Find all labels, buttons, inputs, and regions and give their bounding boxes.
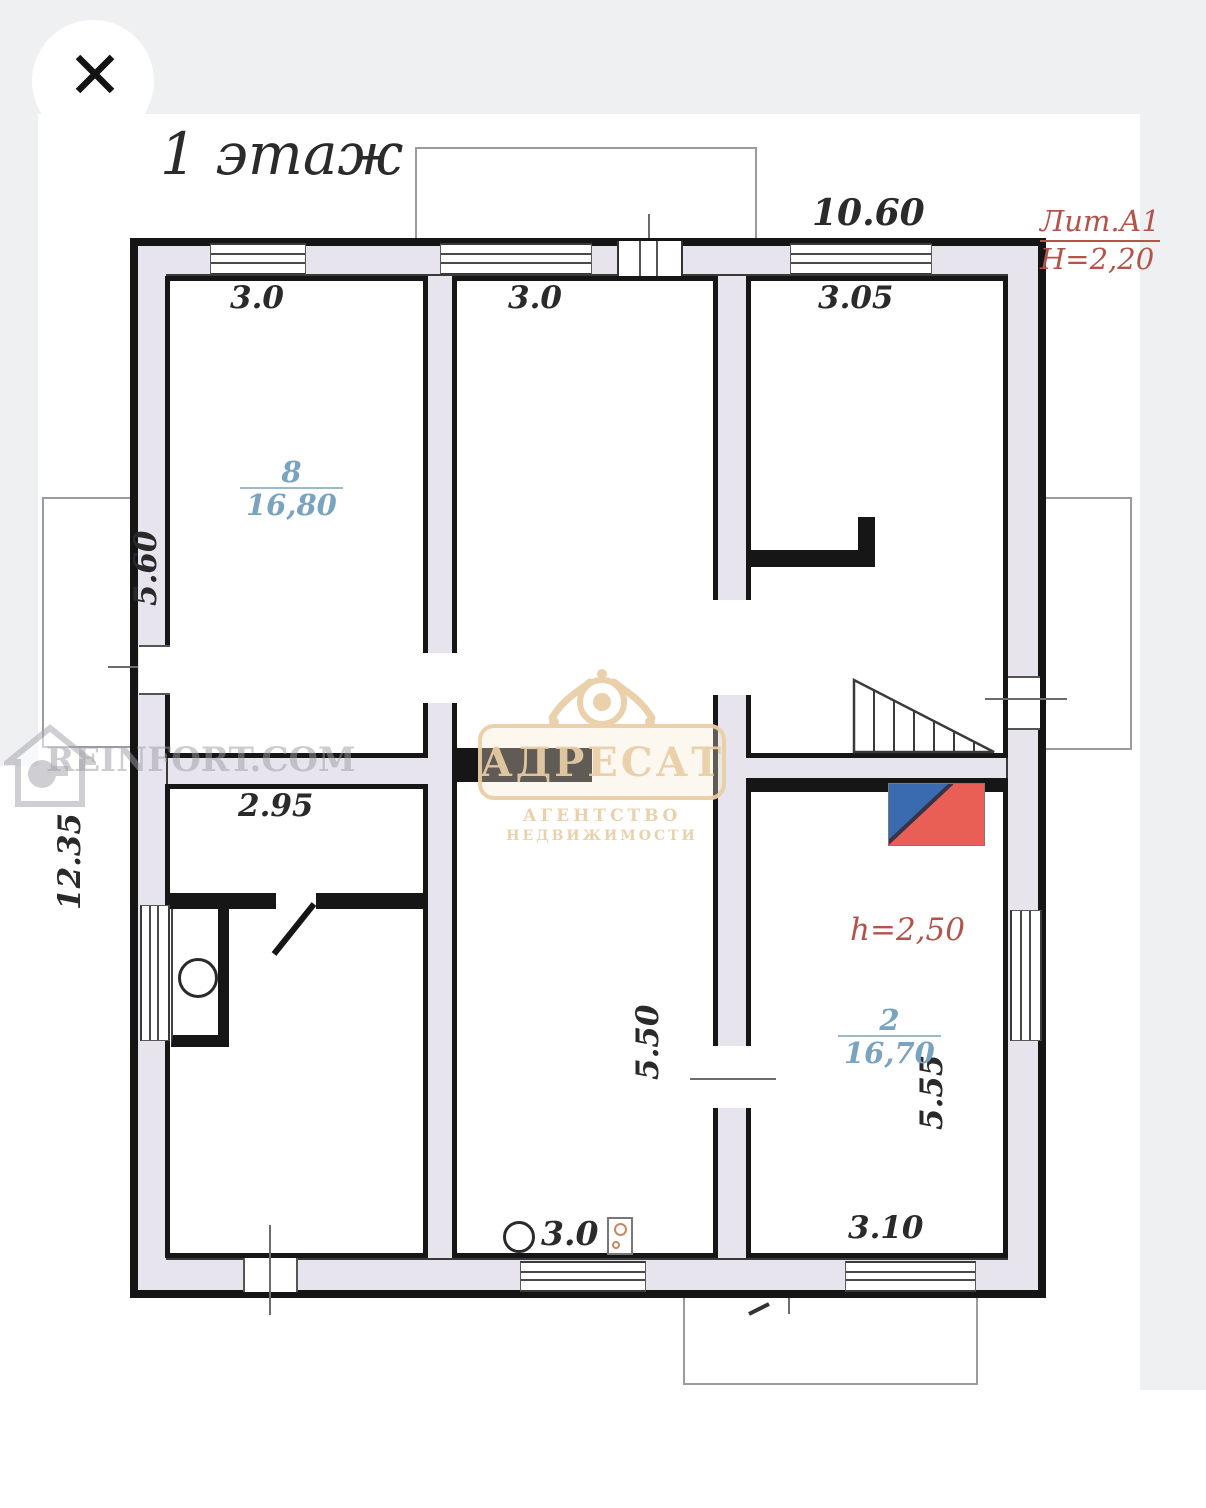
dim-hall-width: 3.0 bbox=[508, 280, 562, 316]
door-room8-hall bbox=[419, 653, 461, 703]
window-bottom-kitchen bbox=[520, 1261, 646, 1292]
door-right bbox=[1008, 676, 1040, 730]
dim-room8-width: 3.0 bbox=[230, 280, 284, 316]
room2-area: 16,70 bbox=[838, 1035, 941, 1068]
lit-label: Лит.А1 bbox=[1040, 204, 1160, 242]
flag-symbol-icon bbox=[888, 783, 985, 846]
room2-number: 2 bbox=[879, 1006, 899, 1035]
sink-circle-icon bbox=[503, 1221, 535, 1253]
dim-room8-height: 5.60 bbox=[128, 530, 164, 606]
l-wall-horizontal bbox=[748, 550, 875, 567]
agency-line2: НЕДВИЖИМОСТИ bbox=[478, 828, 726, 844]
window-bottom-room2 bbox=[845, 1261, 976, 1292]
bottom-porch-outline bbox=[683, 1296, 978, 1385]
extension-line-right bbox=[985, 698, 1067, 700]
door-kitchen-room2 bbox=[710, 1046, 754, 1108]
extension-line-bottom-2 bbox=[788, 1298, 790, 1314]
window-top-2 bbox=[440, 243, 592, 275]
partition-wall-left bbox=[168, 893, 276, 909]
room8-area: 16,80 bbox=[240, 487, 343, 520]
room2-label: 2 16,70 bbox=[838, 1006, 941, 1068]
room2-ceiling-label: h=2,50 bbox=[850, 912, 965, 948]
agency-name: АДРЕСАТ bbox=[480, 739, 724, 786]
partition-wall-right bbox=[316, 893, 428, 909]
close-icon[interactable]: ✕ bbox=[50, 30, 140, 120]
stairs-icon bbox=[848, 676, 1000, 756]
dim-room2-width: 3.10 bbox=[848, 1210, 924, 1246]
site-watermark: REINFORT.COM bbox=[46, 740, 356, 780]
extension-line-left bbox=[108, 666, 138, 668]
room8-number: 8 bbox=[281, 458, 301, 487]
flue-gap bbox=[617, 241, 683, 276]
dim-top-width: 10.60 bbox=[812, 192, 925, 234]
top-porch-outline bbox=[415, 147, 757, 242]
agency-watermark: АДРЕСАТ АГЕНТСТВО НЕДВИЖИМОСТИ bbox=[478, 668, 726, 853]
building-height-label: Н=2,20 bbox=[1040, 242, 1154, 276]
room8-label: 8 16,80 bbox=[240, 458, 343, 520]
door-swing bbox=[262, 898, 326, 962]
image-viewer: ✕ 1 этаж bbox=[0, 0, 1206, 1508]
dim-kitchen-height: 5.50 bbox=[630, 1004, 666, 1080]
stove-icon bbox=[607, 1217, 633, 1255]
l-wall-vertical bbox=[858, 517, 875, 567]
viewer-top-band bbox=[0, 0, 1206, 114]
viewer-left-band bbox=[0, 114, 38, 766]
agency-line1: АГЕНТСТВО bbox=[478, 806, 726, 826]
tick-mark bbox=[745, 1298, 775, 1320]
floor-title: 1 этаж bbox=[160, 120, 403, 188]
right-porch-outline bbox=[1044, 497, 1132, 750]
window-top-1 bbox=[210, 243, 306, 275]
dim-bottom-left-width: 2.95 bbox=[238, 788, 314, 824]
opening-left bbox=[139, 645, 170, 695]
extension-line-bottom bbox=[269, 1225, 271, 1315]
boiler-circle-icon bbox=[178, 958, 218, 998]
dim-left-total: 12.35 bbox=[52, 813, 88, 910]
window-right bbox=[1010, 910, 1042, 1041]
left-porch-outline bbox=[42, 497, 134, 748]
window-top-3 bbox=[790, 243, 932, 275]
porch-divider-line bbox=[648, 214, 650, 240]
viewer-right-band bbox=[1140, 114, 1206, 1390]
dim-kitchen-width: 3.0 bbox=[541, 1214, 598, 1253]
dim-top-right-width: 3.05 bbox=[818, 280, 894, 316]
window-left bbox=[140, 905, 170, 1041]
extension-line-kitchen bbox=[690, 1078, 776, 1080]
